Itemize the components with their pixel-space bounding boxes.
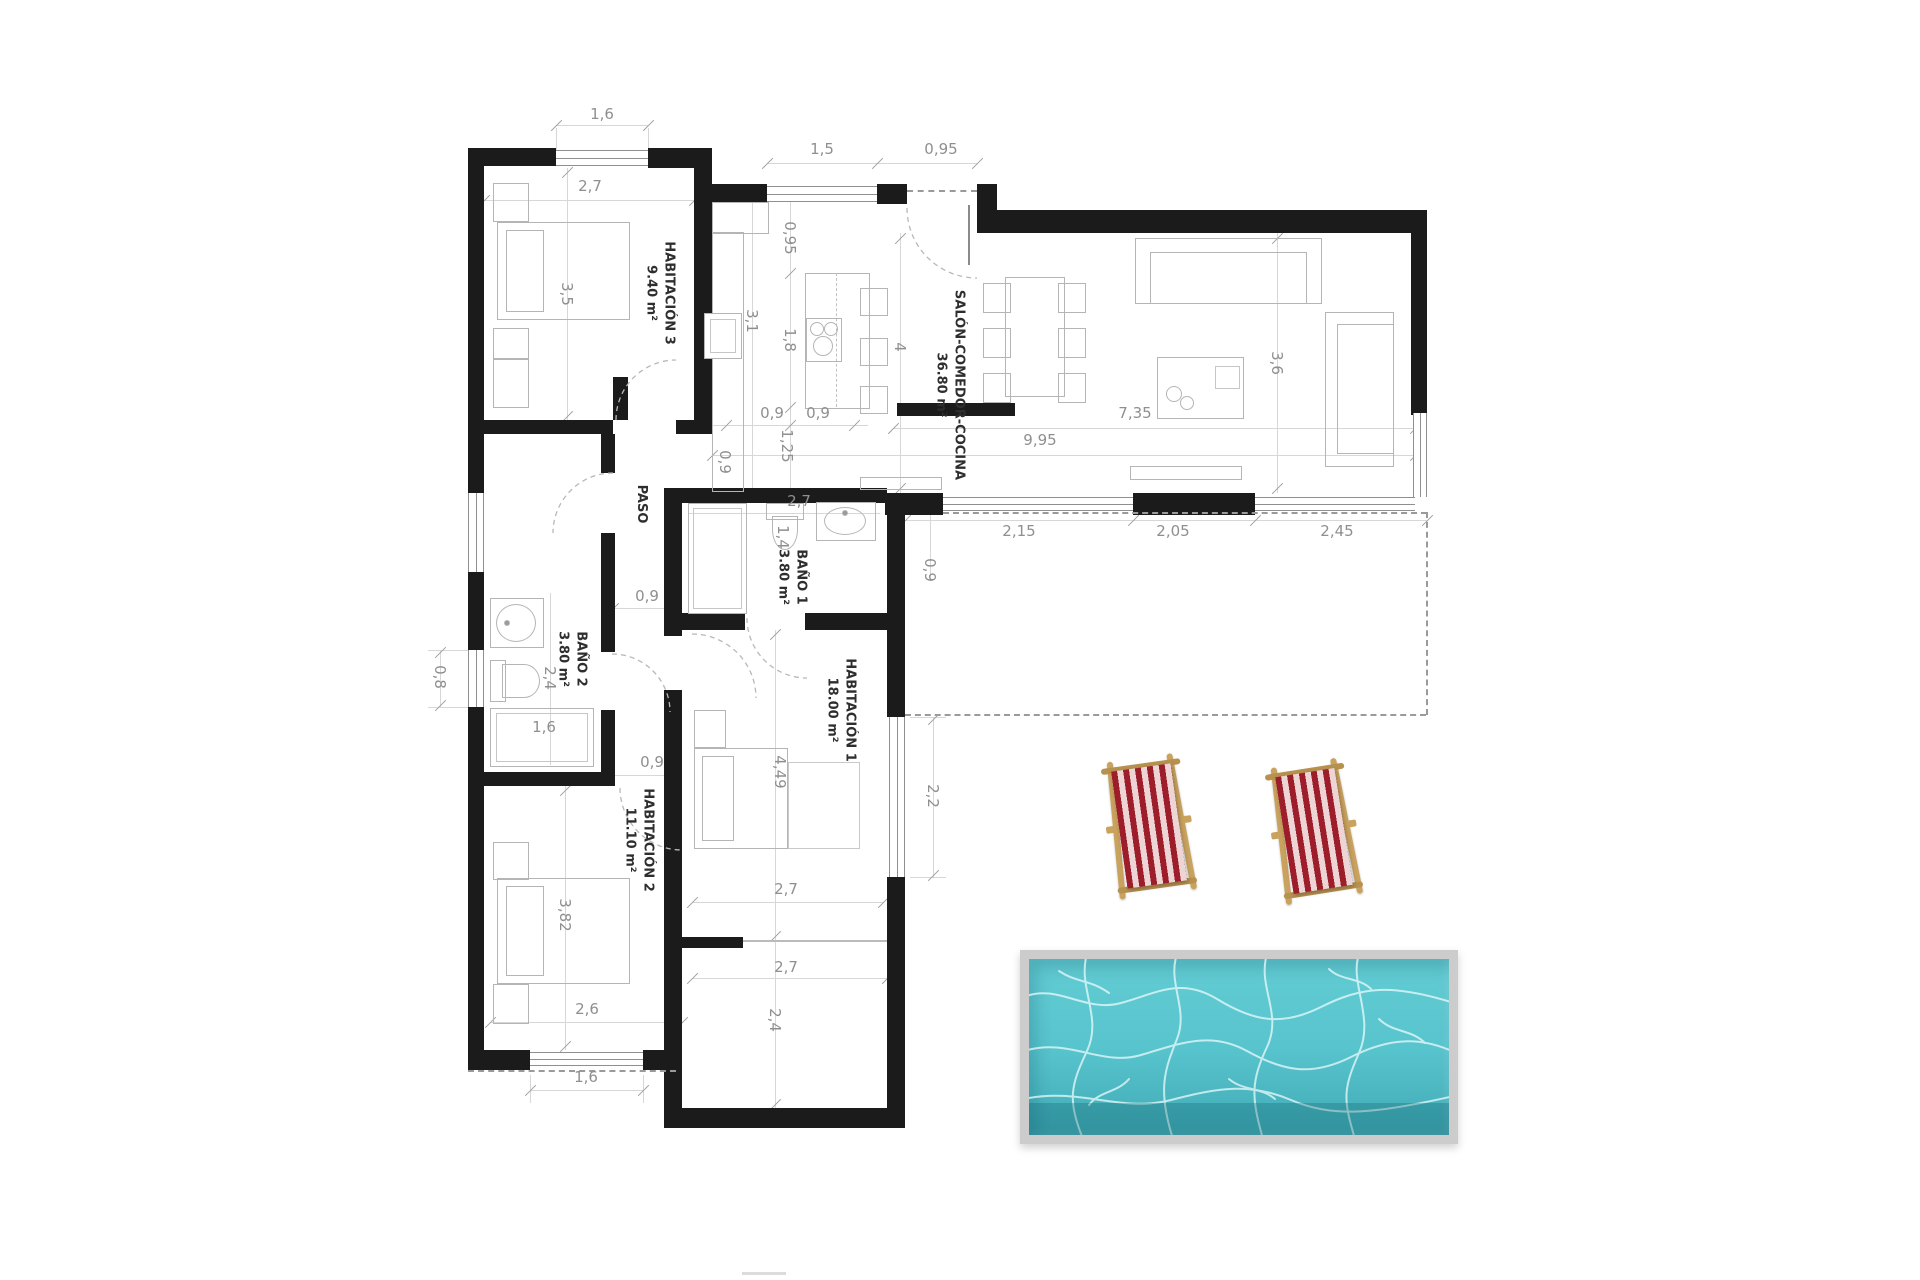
dimension-label: 2,4 (766, 1008, 784, 1032)
room-label-habitacion-3: HABITACIÓN 3 9.40 m² (642, 241, 677, 345)
chair-knob (1106, 826, 1117, 834)
room-area: 18.00 m² (823, 658, 841, 762)
room-area: 3.80 m² (774, 549, 792, 605)
dimension-label: 3,6 (1268, 351, 1286, 375)
room-name: HABITACIÓN 3 (660, 241, 678, 345)
room-label-bano-2: BAÑO 2 3.80 m² (554, 631, 589, 687)
dimension-label: 1,6 (532, 718, 556, 736)
room-label-habitacion-2: HABITACIÓN 2 11.10 m² (621, 788, 656, 892)
dimension-label: 2,2 (924, 784, 942, 808)
dimension-label: 2,05 (1156, 522, 1189, 540)
dimension-label: 9,95 (1023, 431, 1056, 449)
dimension-label: 3,1 (743, 309, 761, 333)
room-name: PASO (632, 485, 650, 524)
room-label-bano-1: BAÑO 1 3.80 m² (774, 549, 809, 605)
room-name: BAÑO 1 (792, 549, 810, 605)
door-arc (616, 360, 676, 420)
dimension-label: 0,9 (760, 404, 784, 422)
door-arc (553, 473, 613, 533)
pool-deep-end (1029, 1103, 1449, 1135)
room-name: HABITACIÓN 2 (639, 788, 657, 892)
dimension-label: 0,95 (781, 221, 799, 254)
room-name: SALÓN-COMEDOR-COCINA (950, 290, 968, 480)
dimension-label: 1,5 (810, 140, 834, 158)
room-area: 11.10 m² (621, 788, 639, 892)
room-label-salon: SALÓN-COMEDOR-COCINA 36.80 m² (932, 290, 967, 480)
dimension-label: 1,8 (781, 328, 799, 352)
dimension-label: 1,6 (574, 1068, 598, 1086)
dimension-label: 0,9 (635, 587, 659, 605)
dimension-label: 2,7 (578, 177, 602, 195)
dimension-label: 4,49 (771, 755, 789, 788)
dimension-label: 3,5 (558, 282, 576, 306)
dimension-label: 2,7 (787, 492, 811, 510)
dimension-label: 0,9 (716, 450, 734, 474)
dimension-label: 2,15 (1002, 522, 1035, 540)
room-label-habitacion-1: HABITACIÓN 1 18.00 m² (823, 658, 858, 762)
room-label-paso: PASO (632, 485, 650, 524)
room-name: BAÑO 2 (572, 631, 590, 687)
dimension-label: 7,35 (1118, 404, 1151, 422)
chair-knob (1181, 815, 1192, 823)
door-arcs (0, 0, 1920, 1280)
dimension-label: 4 (891, 342, 909, 352)
dimension-label: 1,25 (778, 429, 796, 462)
dimension-label: 0,8 (431, 665, 449, 689)
room-area: 9.40 m² (642, 241, 660, 345)
swimming-pool (1020, 950, 1458, 1144)
room-area: 36.80 m² (932, 290, 950, 480)
door-arc (612, 654, 670, 712)
dimension-label: 3,82 (556, 898, 574, 931)
dimension-label: 0,9 (921, 558, 939, 582)
dimension-label: 1,4 (774, 525, 792, 549)
dimension-label: 0,95 (924, 140, 957, 158)
door-arc (747, 618, 807, 678)
dimension-label: 2,7 (774, 958, 798, 976)
dimension-label: 1,6 (590, 105, 614, 123)
dimension-label: 2,45 (1320, 522, 1353, 540)
dimension-label: 2,7 (774, 880, 798, 898)
door-arc (692, 634, 756, 698)
dimension-label: 0,9 (640, 753, 664, 771)
dimension-label: 0,9 (806, 404, 830, 422)
floor-plan: HABITACIÓN 3 9.40 m² SALÓN-COMEDOR-COCIN… (0, 0, 1920, 1280)
watermark-line (742, 1272, 786, 1275)
dimension-label: 2,4 (541, 666, 559, 690)
room-name: HABITACIÓN 1 (841, 658, 859, 762)
door-arc (907, 208, 977, 278)
dimension-label: 2,6 (575, 1000, 599, 1018)
